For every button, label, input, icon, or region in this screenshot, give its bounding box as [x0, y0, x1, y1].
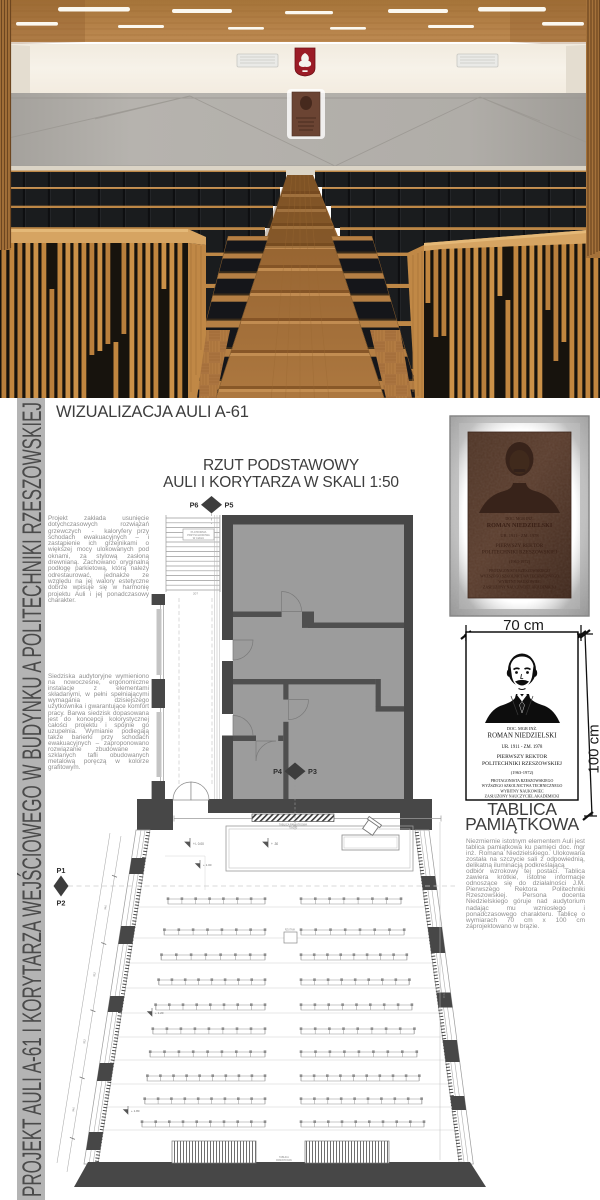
svg-text:PIERWSZY REKTOR: PIERWSZY REKTOR	[496, 543, 544, 549]
svg-text:P3: P3	[308, 767, 317, 776]
svg-text:(1963-1972): (1963-1972)	[509, 559, 531, 564]
svg-text:ROMAN NIEDZIELSKI: ROMAN NIEDZIELSKI	[487, 523, 553, 529]
svg-text:POLITECHNIKI RZESZOWSKIEJ: POLITECHNIKI RZESZOWSKIEJ	[482, 550, 557, 556]
svg-text:DOC. MGR INŻ.: DOC. MGR INŻ.	[507, 726, 537, 731]
svg-text:DOC. MGR INŻ.: DOC. MGR INŻ.	[505, 516, 533, 521]
svg-text:WYBITNY NAUKOWIEC: WYBITNY NAUKOWIEC	[500, 789, 544, 793]
svg-text:UR. 1911 - ZM. 1978: UR. 1911 - ZM. 1978	[500, 533, 539, 538]
svg-text:70x100: 70x100	[289, 826, 298, 830]
svg-text:W CIAGU: W CIAGU	[193, 536, 205, 540]
svg-text:PIERWSZY REKTOR: PIERWSZY REKTOR	[497, 754, 548, 760]
svg-text:+ 1.20: + 1.20	[155, 1011, 164, 1015]
svg-text:+ 1.00: + 1.00	[203, 863, 212, 867]
svg-text:+ .30: + .30	[271, 842, 278, 846]
svg-text:WYŻSZEGO SZKOLNICTWA TECHNICZN: WYŻSZEGO SZKOLNICTWA TECHNICZNEGO	[482, 783, 563, 788]
svg-text:WYBITNY NAUKOWIEC: WYBITNY NAUKOWIEC	[498, 580, 541, 584]
svg-text:(1963-1972): (1963-1972)	[511, 770, 534, 775]
svg-text:+ 1.80: + 1.80	[131, 1109, 140, 1113]
svg-text:346: 346	[71, 1106, 76, 1112]
svg-text:ROMAN NIEDZIELSKI: ROMAN NIEDZIELSKI	[488, 733, 558, 740]
svg-text:P4: P4	[273, 767, 283, 776]
svg-text:2132: 2132	[442, 992, 446, 999]
svg-text:PAMIATKOWA: PAMIATKOWA	[276, 1159, 292, 1162]
svg-text:P1: P1	[57, 866, 66, 875]
svg-text:ZASŁUŻONY NAUCZYCIEL AKADEMICK: ZASŁUŻONY NAUCZYCIEL AKADEMICKI	[483, 585, 557, 590]
svg-text:352: 352	[82, 1038, 87, 1044]
svg-text:ZASŁUŻONY NAUCZYCIEL AKADEMICK: ZASŁUŻONY NAUCZYCIEL AKADEMICKI	[485, 794, 560, 799]
svg-text:P5: P5	[225, 501, 234, 510]
svg-text:WYŻSZEGO SZKOLNICTWA TECHNICZN: WYŻSZEGO SZKOLNICTWA TECHNICZNEGO	[480, 574, 559, 579]
svg-text:POLITECHNIKI RZESZOWSKIEJ: POLITECHNIKI RZESZOWSKIEJ	[482, 761, 563, 767]
svg-text:PROTAGONISTA RZESZOWSKIEGO: PROTAGONISTA RZESZOWSKIEGO	[491, 779, 554, 783]
svg-text:P6: P6	[190, 501, 199, 510]
svg-text:PROTAGONISTA RZESZOWSKIEGO: PROTAGONISTA RZESZOWSKIEGO	[489, 569, 550, 573]
svg-text:P2: P2	[57, 899, 66, 908]
svg-text:346: 346	[103, 904, 108, 910]
svg-text:RZUTNIK: RZUTNIK	[285, 929, 296, 932]
svg-text:100 cm: 100 cm	[586, 724, 600, 773]
svg-text:UR. 1911 - ZM. 1978: UR. 1911 - ZM. 1978	[502, 745, 543, 750]
svg-text:352: 352	[92, 971, 97, 977]
svg-text:207: 207	[193, 592, 198, 596]
svg-text:+/- 0.00: +/- 0.00	[193, 842, 204, 846]
